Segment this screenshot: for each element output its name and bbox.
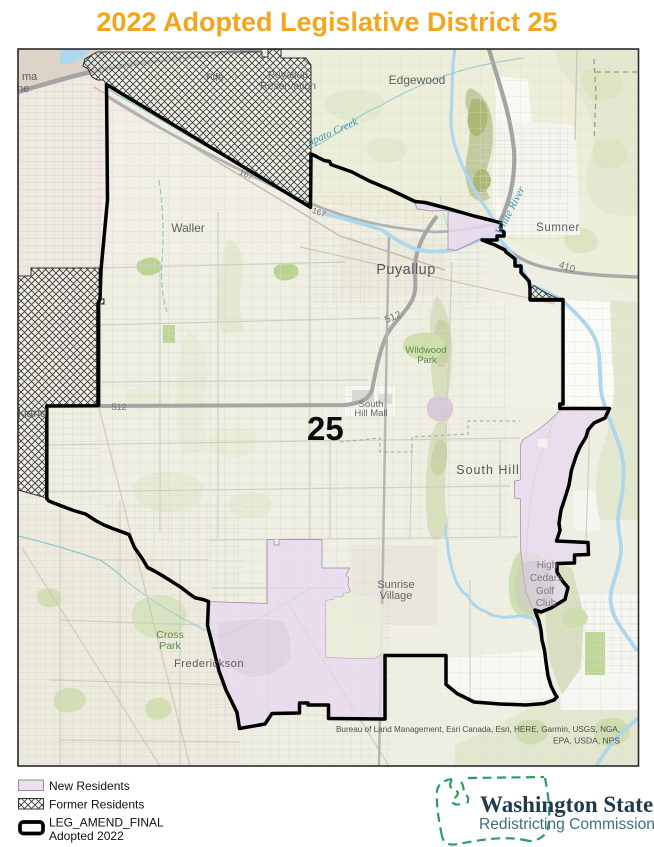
svg-text:Village: Village bbox=[380, 590, 413, 602]
svg-text:High: High bbox=[537, 560, 558, 571]
svg-text:Sumner: Sumner bbox=[536, 222, 580, 234]
svg-text:Park: Park bbox=[417, 355, 437, 366]
svg-text:Former Residents: Former Residents bbox=[49, 798, 144, 812]
svg-text:Golf: Golf bbox=[536, 586, 555, 597]
svg-text:Hill Mall: Hill Mall bbox=[354, 408, 387, 419]
svg-text:kland: kland bbox=[18, 406, 47, 420]
svg-text:Bureau of Land Management, Esr: Bureau of Land Management, Esri Canada, … bbox=[336, 724, 620, 734]
svg-text:Reservation: Reservation bbox=[260, 80, 316, 92]
svg-text:Redistricting Commission: Redistricting Commission bbox=[479, 816, 654, 833]
svg-text:LEG_AMEND_FINAL: LEG_AMEND_FINAL bbox=[49, 816, 164, 830]
svg-text:512: 512 bbox=[111, 402, 126, 412]
svg-text:25: 25 bbox=[307, 410, 344, 447]
svg-text:Waller: Waller bbox=[171, 221, 205, 235]
svg-text:Frederickson: Frederickson bbox=[174, 658, 244, 670]
svg-text:2022 Adopted Legislative Distr: 2022 Adopted Legislative District 25 bbox=[96, 7, 557, 37]
svg-text:Cedars: Cedars bbox=[530, 573, 562, 584]
svg-text:Puyallup: Puyallup bbox=[376, 262, 436, 278]
svg-text:ne: ne bbox=[17, 83, 29, 95]
svg-text:Washington State: Washington State bbox=[480, 792, 653, 817]
svg-text:New Residents: New Residents bbox=[49, 779, 130, 793]
svg-text:EPA, USDA, NPS: EPA, USDA, NPS bbox=[553, 736, 620, 746]
svg-text:Edgewood: Edgewood bbox=[389, 73, 446, 87]
svg-text:Adopted 2022: Adopted 2022 bbox=[49, 829, 124, 843]
svg-text:Park: Park bbox=[159, 640, 181, 652]
svg-text:Fife: Fife bbox=[206, 72, 224, 84]
svg-text:ma: ma bbox=[22, 71, 38, 83]
svg-text:Club: Club bbox=[536, 598, 557, 609]
svg-text:South Hill: South Hill bbox=[456, 463, 520, 477]
